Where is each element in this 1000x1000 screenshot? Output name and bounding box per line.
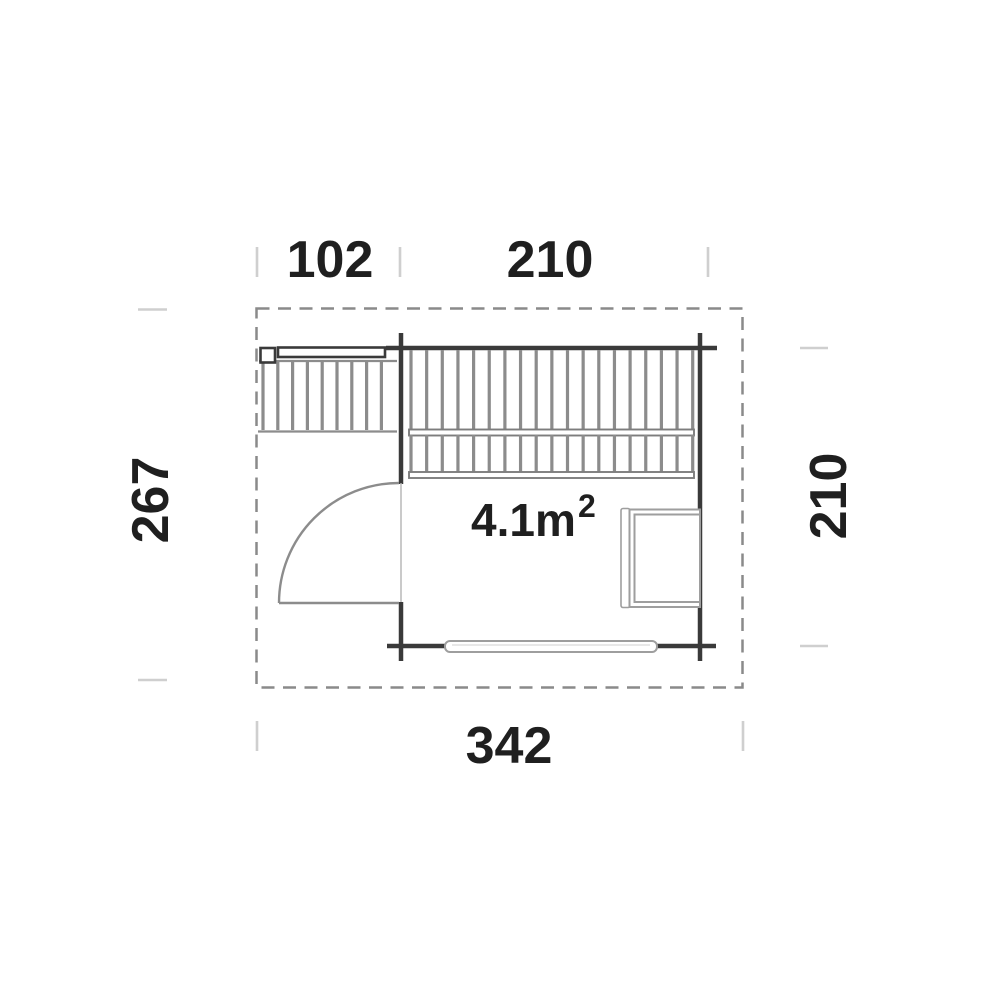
floor-plan-image: 102 210 267 210 342 4.1m 2 <box>0 0 1000 1000</box>
dim-total-height: 267 <box>122 457 180 544</box>
dim-terrace-width: 102 <box>287 231 374 289</box>
dim-room-depth: 210 <box>800 453 858 540</box>
dim-room-width: 210 <box>507 231 594 289</box>
window-frame <box>445 641 657 652</box>
bench-upper-hatch <box>411 350 693 429</box>
area-superscript: 2 <box>578 488 596 524</box>
terrace-section <box>258 348 397 432</box>
bench-lower-hatch <box>411 435 693 472</box>
area-value: 4.1m <box>471 494 576 546</box>
door-swing-arc <box>279 483 399 603</box>
corner-post <box>261 348 276 363</box>
dim-total-width: 342 <box>466 717 553 775</box>
area-label: 4.1m 2 <box>471 488 596 546</box>
window <box>445 641 657 652</box>
terrace-decking-hatch <box>263 362 381 430</box>
terrace-railing <box>278 348 385 358</box>
bench-front-rail <box>409 472 694 478</box>
floor-plan-drawing: 102 210 267 210 342 4.1m 2 <box>0 0 1000 1000</box>
side-bench <box>621 509 700 608</box>
side-bench-inner <box>635 515 701 603</box>
bench-upper-tier <box>409 350 694 436</box>
bench-divider-rail <box>409 430 694 436</box>
door <box>279 483 399 603</box>
bench-lower-tier <box>409 435 694 478</box>
